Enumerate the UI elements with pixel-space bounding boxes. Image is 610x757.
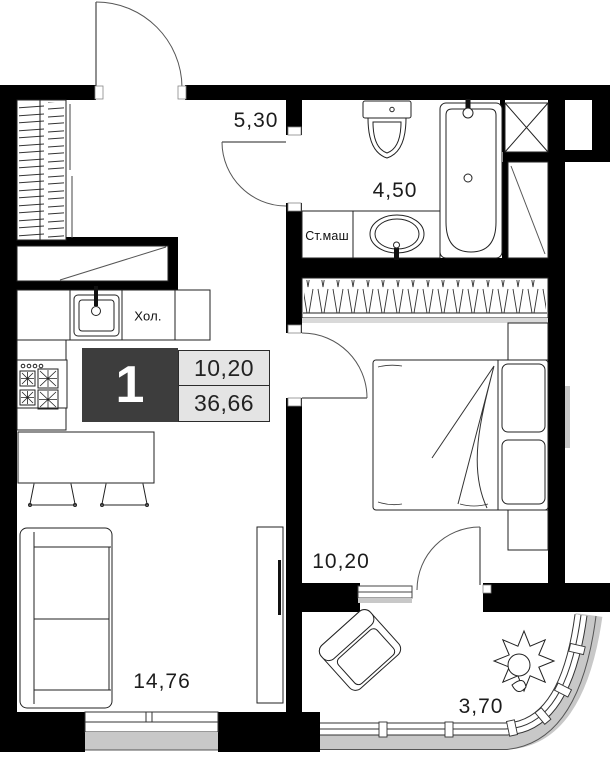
unit-badge: 1 10,20 36,66 bbox=[82, 348, 270, 422]
armchair bbox=[316, 606, 404, 693]
unit-total-area: 36,66 bbox=[179, 386, 269, 421]
toilet bbox=[363, 101, 411, 158]
exterior-divider bbox=[565, 386, 570, 448]
sofa bbox=[20, 528, 112, 708]
living-area-label: 14,76 bbox=[133, 670, 191, 694]
balcony-door bbox=[417, 527, 480, 590]
unit-areas: 10,20 36,66 bbox=[178, 350, 270, 422]
unit-living-area: 10,20 bbox=[179, 351, 269, 386]
entrance-door bbox=[96, 2, 182, 88]
vent-shaft bbox=[505, 103, 548, 152]
bedroom-wardrobe bbox=[302, 278, 548, 323]
utility-closet bbox=[508, 162, 548, 258]
balcony-area-label: 3,70 bbox=[459, 695, 504, 719]
plant bbox=[494, 631, 554, 692]
hall-closet bbox=[17, 246, 168, 281]
unit-rooms-count: 1 bbox=[82, 348, 178, 422]
bed bbox=[373, 360, 548, 510]
chairs bbox=[29, 484, 149, 507]
dining-table bbox=[18, 432, 154, 483]
fridge-label: Хол. bbox=[134, 309, 161, 324]
washing-machine-label: Ст.маш bbox=[305, 229, 349, 243]
bathroom-area-label: 4,50 bbox=[373, 179, 418, 203]
bedroom-window bbox=[358, 586, 412, 603]
bathroom-door bbox=[222, 142, 286, 206]
stove bbox=[17, 360, 67, 409]
hall-area-label: 5,30 bbox=[234, 109, 279, 133]
tv-stand bbox=[257, 527, 283, 703]
floor-plan: 5,30 4,50 10,20 14,76 3,70 Ст.маш Хол. 1… bbox=[0, 0, 610, 757]
bedroom-area-label: 10,20 bbox=[312, 550, 370, 574]
bathtub bbox=[440, 99, 502, 258]
bedroom-door bbox=[302, 333, 367, 398]
entry-wardrobe bbox=[17, 100, 72, 240]
living-window bbox=[85, 712, 218, 750]
